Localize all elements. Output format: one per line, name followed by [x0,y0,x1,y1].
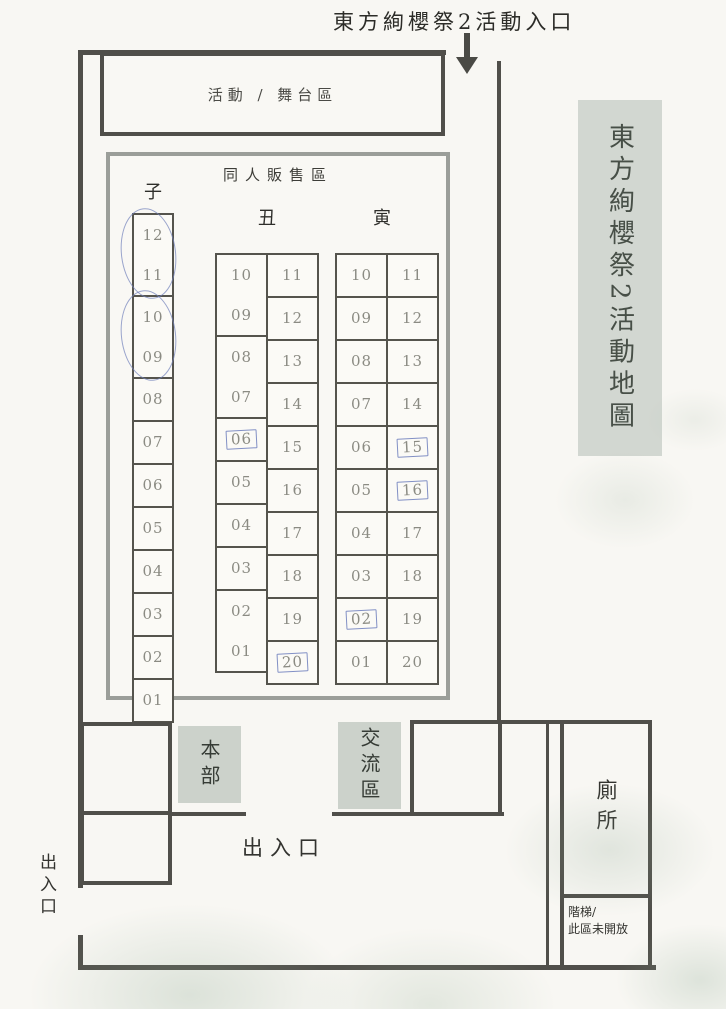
booth-number: 20 [402,655,423,670]
corridor-side-room [410,720,502,816]
booth-number: 17 [282,526,303,541]
booth-number: 12 [282,311,303,326]
booth-number: 03 [231,561,252,576]
booth-cell: 14 [386,382,439,427]
booth-number-pen-marked: 11 [142,268,163,283]
booth-number: 02 [142,650,163,665]
booth-number: 07 [231,390,252,405]
booth-cell: 08 [335,339,388,384]
booth-number: 07 [351,397,372,412]
booth-subcolumn: 10090807060504030201 [335,253,388,685]
booth-cell: 15 [266,425,319,470]
booth-number: 06 [142,478,163,493]
booth-number: 13 [282,354,303,369]
booth-number: 08 [142,392,163,407]
booth-cell: 15 [386,425,439,470]
booth-cell: 16 [266,468,319,513]
booth-cell: 0807 [215,335,268,419]
booth-number: 14 [282,397,303,412]
booth-number: 10 [231,268,252,283]
booth-cell: 07 [335,382,388,427]
booth-number: 03 [142,607,163,622]
booth-number: 05 [351,483,372,498]
booth-number-pen-marked: 02 [345,609,377,630]
booth-cell: 06 [335,425,388,470]
booth-cell: 08 [132,377,174,422]
exchange-panel: 交流區 [338,722,401,809]
exit-side-label: 出入口 [34,853,59,919]
booth-number: 05 [231,475,252,490]
booth-cell: 03 [132,592,174,637]
booth-cell: 10 [335,253,388,298]
stage-label: 活動 / 舞台區 [208,84,338,105]
exchange-label: 交流區 [355,727,384,805]
booth-cell: 1009 [132,295,174,379]
booth-cell: 14 [266,382,319,427]
booth-cell: 13 [386,339,439,384]
toilet-block: 廁所 階梯/ 此區未開放 [560,720,652,969]
booth-number: 12 [402,311,423,326]
booth-number: 01 [142,693,163,708]
left-room-upper [80,722,172,815]
entrance-down-arrow-icon [464,33,470,58]
booth-cell: 12 [386,296,439,341]
booth-cell: 12 [266,296,319,341]
exit-main-label: 出入口 [242,832,326,862]
booth-number: 18 [282,569,303,584]
booth-number: 03 [351,569,372,584]
booth-number: 01 [231,644,252,659]
stage-area: 活動 / 舞台區 [100,52,445,136]
booth-cell: 01 [335,640,388,685]
booth-cell: 11 [386,253,439,298]
booth-cell: 04 [335,511,388,556]
booth-number: 04 [142,564,163,579]
booth-cell: 20 [386,640,439,685]
booth-cell: 03 [215,546,268,591]
booth-cell: 17 [386,511,439,556]
booth-cell: 05 [215,460,268,505]
side-title-panel: 東方絢櫻祭2活動地圖 [578,100,662,456]
booth-number-pen-marked: 15 [396,437,428,458]
booth-cell: 06 [215,417,268,462]
booth-number-pen-marked: 12 [142,228,163,243]
booth-cell: 05 [132,506,174,551]
booth-number: 16 [282,483,303,498]
booth-column-label-chou: 丑 [215,204,319,230]
hq-label: 本部 [195,739,224,791]
booth-cell: 18 [386,554,439,599]
booth-cell: 06 [132,463,174,508]
booth-cell: 13 [266,339,319,384]
booth-number: 02 [231,604,252,619]
booth-column-zi: 121110090807060504030201 [132,213,174,723]
booth-cell: 11 [266,253,319,298]
booth-number: 19 [402,612,423,627]
event-map-page: 東方絢櫻祭2活動入口 活動 / 舞台區 同人販售區 子 丑 寅 12111009… [0,0,726,1009]
stairs-label-line1: 階梯/ [568,904,645,921]
booth-number: 01 [351,655,372,670]
entrance-label: 東方絢櫻祭2活動入口 [333,6,613,36]
booth-cell: 19 [266,597,319,642]
booth-number: 11 [402,268,423,283]
booth-cell: 04 [132,549,174,594]
booth-subcolumn: 10090807060504030201 [215,253,268,673]
booth-number: 04 [351,526,372,541]
side-title: 東方絢櫻祭2活動地圖 [602,123,639,434]
booth-number: 15 [282,440,303,455]
toilet-label: 廁所 [591,779,621,839]
booth-cell: 05 [335,468,388,513]
booth-cell: 02 [132,635,174,680]
wall-hall-right [546,722,549,968]
booth-cell: 1009 [215,253,268,337]
booth-cell: 0201 [215,589,268,673]
wall-lower-segment-left [170,812,246,816]
wall-entrance-corridor [497,61,501,722]
left-room-lower [80,811,172,885]
booth-number: 04 [231,518,252,533]
booth-column-chou: 1009080706050403020111121314151617181920 [215,253,319,685]
booth-subcolumn: 11121314151617181920 [266,253,319,685]
booth-cell: 18 [266,554,319,599]
booth-number-pen-marked: 20 [276,652,308,673]
booth-cell: 1211 [132,213,174,297]
booth-number-pen-marked: 10 [142,310,163,325]
booth-cell: 04 [215,503,268,548]
booth-number: 08 [231,350,252,365]
booth-number: 07 [142,435,163,450]
booth-cell: 16 [386,468,439,513]
booth-number: 10 [351,268,372,283]
stairs-room: 階梯/ 此區未開放 [560,894,652,969]
booth-cell: 07 [132,420,174,465]
booth-number: 18 [402,569,423,584]
booth-cell: 03 [335,554,388,599]
booth-number: 08 [351,354,372,369]
booth-cell: 09 [335,296,388,341]
booth-number: 19 [282,612,303,627]
booth-subcolumn: 11121314151617181920 [386,253,439,685]
booth-number: 13 [402,354,423,369]
booth-number-pen-marked: 09 [142,350,163,365]
booth-cell: 20 [266,640,319,685]
booth-cell: 01 [132,678,174,723]
booth-number: 14 [402,397,423,412]
booth-column-yin: 1009080706050403020111121314151617181920 [335,253,439,685]
booth-number: 05 [142,521,163,536]
toilet-room: 廁所 [560,720,652,898]
booth-column-label-zi: 子 [132,178,174,204]
booth-cell: 19 [386,597,439,642]
booth-number: 06 [351,440,372,455]
booth-number-pen-marked: 06 [225,429,257,450]
hq-panel: 本部 [178,726,241,803]
entrance-down-arrow-head-icon [456,57,478,74]
booth-number-pen-marked: 16 [396,480,428,501]
booth-cell: 02 [335,597,388,642]
booth-subcolumn: 121110090807060504030201 [132,213,174,723]
booth-number: 11 [282,268,303,283]
booth-number: 17 [402,526,423,541]
booth-cell: 17 [266,511,319,556]
booth-column-label-yin: 寅 [330,204,434,230]
booth-number: 09 [231,308,252,323]
stairs-label-line2: 此區未開放 [568,921,645,938]
booth-number: 09 [351,311,372,326]
